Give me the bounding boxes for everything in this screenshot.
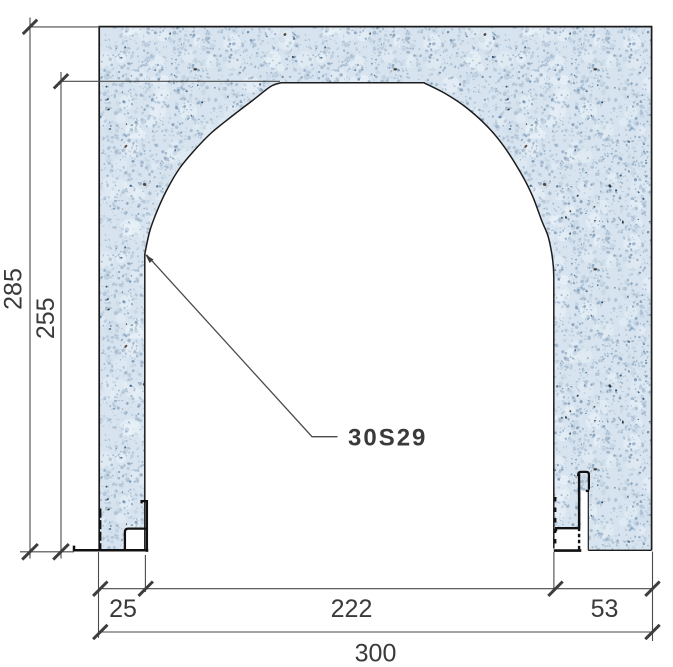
svg-text:300: 300 [355,640,397,667]
svg-text:25: 25 [109,595,137,623]
svg-text:285: 285 [0,268,28,310]
svg-text:30S29: 30S29 [348,425,427,452]
svg-text:255: 255 [32,297,60,339]
svg-text:53: 53 [591,595,619,623]
svg-text:222: 222 [331,595,373,623]
